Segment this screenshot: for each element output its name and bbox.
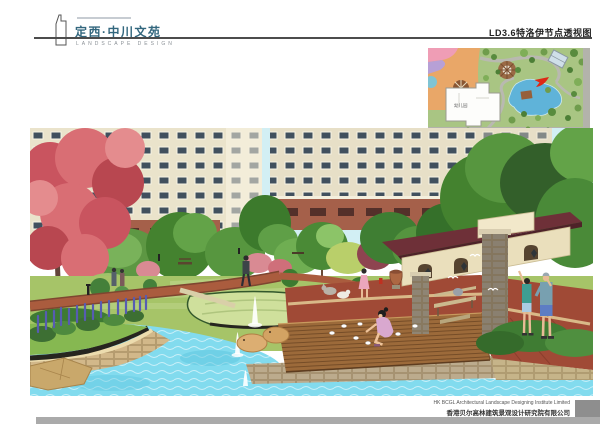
svg-text:幼儿园: 幼儿园 [454, 102, 468, 109]
header-microtext [77, 17, 131, 19]
water-corner-ripples [496, 380, 593, 396]
perspective-rendering [30, 128, 593, 396]
company-name-en: HK BCGL Architectural Landscape Designin… [433, 400, 570, 406]
brand-subtitle: LANDSCAPE DESIGN [76, 41, 175, 47]
plan-ring-plaza [498, 61, 516, 79]
presentation-board: 定西·中川文苑 LANDSCAPE DESIGN LD3.6特洛伊节点透视图 [0, 0, 600, 424]
site-plan-inset: 幼儿园 [428, 48, 590, 133]
sheet-title: LD3.6特洛伊节点透视图 [372, 26, 592, 39]
bottom-gray-bar [36, 417, 600, 424]
tower-logo-icon [52, 12, 72, 46]
company-name-cn: 香港贝尔高林建筑景观设计研究院有限公司 [447, 407, 571, 417]
